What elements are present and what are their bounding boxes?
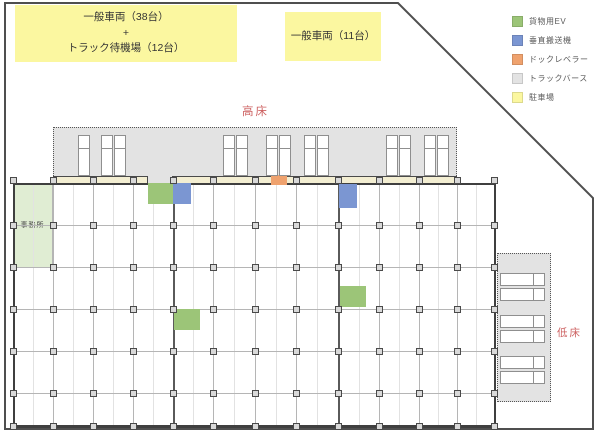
column-marker xyxy=(130,423,137,430)
column-marker xyxy=(252,264,259,271)
column-marker xyxy=(335,306,342,313)
truck-slot xyxy=(236,135,248,176)
column-marker xyxy=(130,177,137,184)
column-marker xyxy=(335,390,342,397)
legend-label: 貨物用EV xyxy=(529,16,566,27)
column-marker xyxy=(416,177,423,184)
column-marker xyxy=(454,423,461,430)
column-marker xyxy=(491,423,498,430)
parking-zone-label: 一般車両（38台） xyxy=(15,10,237,26)
column-marker xyxy=(376,348,383,355)
grid-minor-line xyxy=(153,183,154,426)
truck-slot xyxy=(279,135,291,176)
column-marker xyxy=(50,264,57,271)
column-marker xyxy=(210,390,217,397)
cargo-elevator-box xyxy=(174,309,200,330)
truck-slot-cab xyxy=(533,331,544,342)
column-marker xyxy=(491,348,498,355)
column-marker xyxy=(210,264,217,271)
legend-label: 垂直搬送機 xyxy=(529,35,572,46)
column-marker xyxy=(10,222,17,229)
column-marker xyxy=(210,306,217,313)
column-marker xyxy=(170,177,177,184)
column-marker xyxy=(90,390,97,397)
grid-minor-line xyxy=(476,183,477,426)
truck-slot xyxy=(101,135,113,176)
column-marker xyxy=(491,306,498,313)
column-marker xyxy=(90,222,97,229)
truck-slot-cab xyxy=(237,136,247,149)
vertical-conveyor-box xyxy=(339,184,357,208)
truck-slot-cab xyxy=(318,136,328,149)
parking-swatch-icon xyxy=(512,92,523,103)
truck-slot xyxy=(424,135,436,176)
dock-leveler-swatch-icon xyxy=(512,54,523,65)
column-marker xyxy=(90,423,97,430)
vertical-conveyor-box xyxy=(173,183,191,204)
column-marker xyxy=(491,177,498,184)
column-marker xyxy=(454,306,461,313)
truck-slot xyxy=(500,371,545,384)
truck-slot-cab xyxy=(79,136,89,149)
truck-slot xyxy=(500,273,545,286)
column-marker xyxy=(416,423,423,430)
column-marker xyxy=(130,390,137,397)
grid-minor-line xyxy=(399,183,400,426)
column-marker xyxy=(210,222,217,229)
truck-slot-cab xyxy=(102,136,112,149)
truck-slot-cab xyxy=(400,136,410,149)
column-marker xyxy=(293,390,300,397)
column-marker xyxy=(10,264,17,271)
column-marker xyxy=(10,177,17,184)
truck-slot-cab xyxy=(533,316,544,327)
vertical-conveyor-swatch-icon xyxy=(512,35,523,46)
parking-zone-label: 一般車両（11台） xyxy=(285,29,381,45)
cargo-elevator-box xyxy=(340,286,366,307)
column-marker xyxy=(210,423,217,430)
grid-minor-line xyxy=(113,183,114,426)
low-floor-label: 低床 xyxy=(557,325,582,340)
truck-slot-cab xyxy=(533,372,544,383)
column-marker xyxy=(376,177,383,184)
grid-minor-line xyxy=(73,183,74,426)
truck-slot xyxy=(500,330,545,343)
truck-slot xyxy=(500,288,545,301)
truck-slot xyxy=(386,135,398,176)
column-marker xyxy=(252,306,259,313)
column-marker xyxy=(293,348,300,355)
column-marker xyxy=(293,423,300,430)
warehouse-floor-plan: 一般車両（38台） + トラック待機場（12台） 一般車両（11台） 貨物用EV… xyxy=(0,0,600,432)
column-marker xyxy=(170,264,177,271)
column-marker xyxy=(90,348,97,355)
parking-zone-label: + xyxy=(15,26,237,42)
truck-slot-cab xyxy=(438,136,448,149)
column-marker xyxy=(454,348,461,355)
truck-slot xyxy=(399,135,411,176)
legend-item-parking: 駐車場 xyxy=(512,92,589,103)
column-marker xyxy=(252,390,259,397)
truck-slot-cab xyxy=(533,357,544,368)
column-marker xyxy=(376,306,383,313)
column-marker xyxy=(10,390,17,397)
legend-label: 駐車場 xyxy=(529,92,555,103)
truck-slot xyxy=(304,135,316,176)
column-marker xyxy=(90,264,97,271)
column-marker xyxy=(376,264,383,271)
column-marker xyxy=(10,348,17,355)
column-marker xyxy=(335,348,342,355)
cargo-elevator-swatch-icon xyxy=(512,16,523,27)
column-marker xyxy=(90,306,97,313)
column-marker xyxy=(293,264,300,271)
column-marker xyxy=(416,390,423,397)
column-marker xyxy=(50,177,57,184)
column-marker xyxy=(293,222,300,229)
column-marker xyxy=(376,390,383,397)
grid-minor-line xyxy=(276,183,277,426)
column-marker xyxy=(416,348,423,355)
column-marker xyxy=(416,222,423,229)
dock-leveler-box xyxy=(271,175,287,185)
column-marker xyxy=(252,177,259,184)
column-marker xyxy=(454,264,461,271)
truck-slot xyxy=(437,135,449,176)
column-marker xyxy=(170,390,177,397)
high-floor-label: 高床 xyxy=(242,103,269,119)
grid-minor-line xyxy=(33,183,34,426)
legend-item-cargo-elevator: 貨物用EV xyxy=(512,16,589,27)
grid-minor-line xyxy=(193,183,194,426)
truck-slot-cab xyxy=(305,136,315,149)
column-marker xyxy=(252,423,259,430)
truck-berth-swatch-icon xyxy=(512,73,523,84)
truck-slot-cab xyxy=(224,136,234,149)
truck-slot-cab xyxy=(387,136,397,149)
column-marker xyxy=(10,306,17,313)
column-marker xyxy=(10,423,17,430)
column-marker xyxy=(130,222,137,229)
column-marker xyxy=(491,390,498,397)
cargo-elevator-box xyxy=(148,183,173,204)
column-marker xyxy=(90,177,97,184)
column-marker xyxy=(376,222,383,229)
column-marker xyxy=(50,348,57,355)
column-marker xyxy=(170,348,177,355)
column-marker xyxy=(416,306,423,313)
parking-zone-label: トラック待機場（12台） xyxy=(15,41,237,57)
parking-zone-general-truck: 一般車両（38台） + トラック待機場（12台） xyxy=(15,5,237,62)
column-marker xyxy=(491,222,498,229)
legend-item-vertical-conveyor: 垂直搬送機 xyxy=(512,35,589,46)
truck-slot-cab xyxy=(267,136,277,149)
legend-item-dock-leveler: ドックレベラー xyxy=(512,54,589,65)
legend: 貨物用EV 垂直搬送機 ドックレベラー トラックバース 駐車場 xyxy=(512,16,589,103)
column-marker xyxy=(335,264,342,271)
truck-slot xyxy=(500,356,545,369)
column-marker xyxy=(170,423,177,430)
truck-slot-cab xyxy=(280,136,290,149)
truck-slot xyxy=(78,135,90,176)
column-marker xyxy=(130,348,137,355)
column-marker xyxy=(252,222,259,229)
column-marker xyxy=(50,222,57,229)
column-marker xyxy=(50,423,57,430)
truck-slot-cab xyxy=(533,289,544,300)
column-marker xyxy=(416,264,423,271)
grid-minor-line xyxy=(317,183,318,426)
column-marker xyxy=(335,177,342,184)
column-marker xyxy=(491,264,498,271)
column-marker xyxy=(335,222,342,229)
grid-minor-line xyxy=(234,183,235,426)
parking-zone-general: 一般車両（11台） xyxy=(285,12,381,61)
column-marker xyxy=(293,306,300,313)
truck-slot-cab xyxy=(533,274,544,285)
column-marker xyxy=(170,222,177,229)
truck-slot xyxy=(266,135,278,176)
column-marker xyxy=(130,264,137,271)
legend-item-truck-berth: トラックバース xyxy=(512,73,589,84)
truck-slot-cab xyxy=(115,136,125,149)
column-marker xyxy=(252,348,259,355)
truck-slot xyxy=(500,315,545,328)
column-marker xyxy=(293,177,300,184)
column-marker xyxy=(170,306,177,313)
truck-slot xyxy=(114,135,126,176)
column-marker xyxy=(454,390,461,397)
column-marker xyxy=(335,423,342,430)
truck-slot xyxy=(223,135,235,176)
legend-label: トラックバース xyxy=(529,73,588,84)
column-marker xyxy=(454,177,461,184)
grid-minor-line xyxy=(438,183,439,426)
truck-slot xyxy=(317,135,329,176)
column-marker xyxy=(210,348,217,355)
column-marker xyxy=(130,306,137,313)
column-marker xyxy=(210,177,217,184)
legend-label: ドックレベラー xyxy=(529,54,589,65)
column-marker xyxy=(376,423,383,430)
column-marker xyxy=(454,222,461,229)
column-marker xyxy=(50,306,57,313)
truck-slot-cab xyxy=(425,136,435,149)
column-marker xyxy=(50,390,57,397)
